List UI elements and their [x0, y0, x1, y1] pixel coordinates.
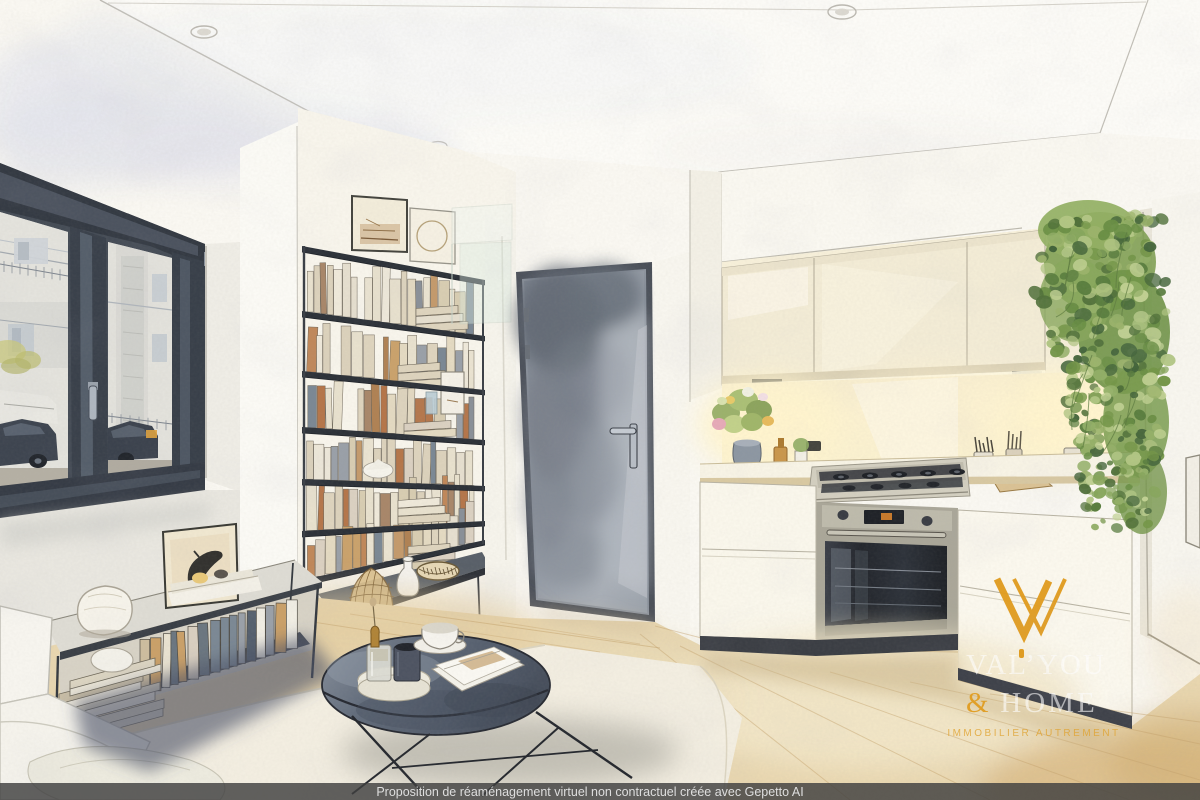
- svg-text:Proposition de réaménagement v: Proposition de réaménagement virtuel non…: [376, 785, 803, 799]
